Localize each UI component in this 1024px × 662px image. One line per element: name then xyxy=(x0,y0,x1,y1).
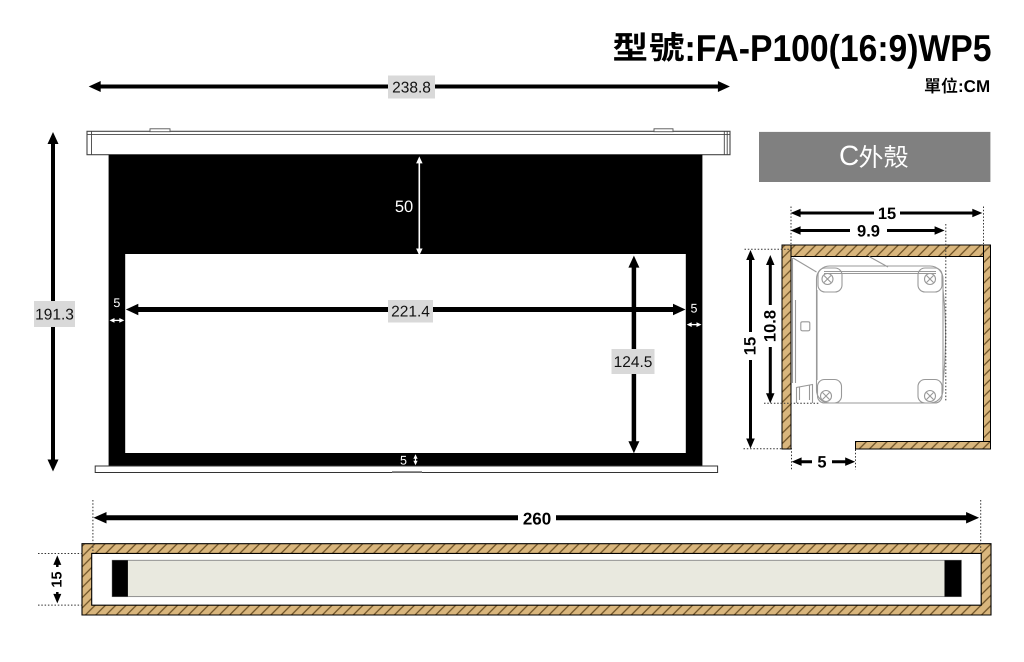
svg-text:15: 15 xyxy=(49,571,65,587)
svg-text:15: 15 xyxy=(742,337,760,355)
svg-text::CM: :CM xyxy=(958,77,990,96)
svg-text:9.9: 9.9 xyxy=(857,223,880,241)
svg-text:191.3: 191.3 xyxy=(35,307,74,324)
svg-text:5: 5 xyxy=(817,454,826,472)
svg-text:5: 5 xyxy=(691,302,698,316)
svg-text:15: 15 xyxy=(878,205,896,223)
svg-text:C: C xyxy=(839,140,859,171)
svg-text:10.8: 10.8 xyxy=(761,310,779,342)
svg-text:5: 5 xyxy=(113,296,120,310)
svg-text:50: 50 xyxy=(395,198,413,216)
svg-text:124.5: 124.5 xyxy=(614,354,653,371)
svg-text:5: 5 xyxy=(400,454,407,468)
svg-text:238.8: 238.8 xyxy=(392,80,431,97)
svg-text:260: 260 xyxy=(523,510,551,529)
svg-text:221.4: 221.4 xyxy=(391,304,430,321)
svg-text::FA-P100(16:9)WP5: :FA-P100(16:9)WP5 xyxy=(685,27,992,69)
